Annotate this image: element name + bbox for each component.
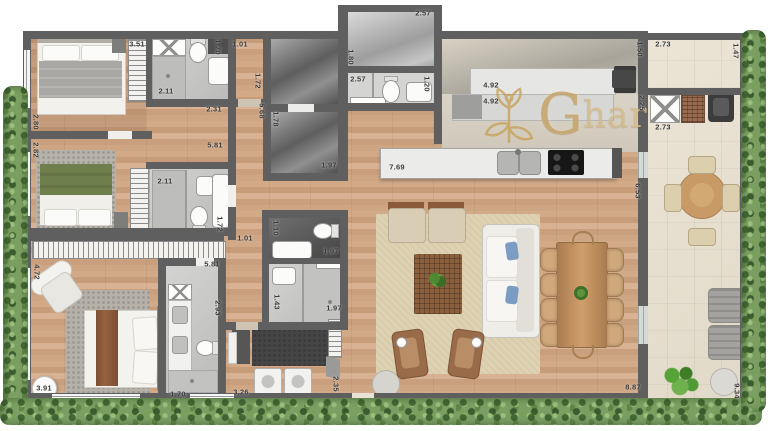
bedroom1-door-gap <box>108 131 132 139</box>
bbq-sink-counter <box>650 95 680 123</box>
bath2-door-gap <box>228 185 236 207</box>
corridor-door-gap <box>238 99 261 107</box>
sofa-back <box>516 228 534 332</box>
terrace-table <box>678 171 726 219</box>
wall-unit257-top <box>344 5 442 12</box>
terrace-slider-1 <box>638 152 648 178</box>
bathroom1-sink-counter <box>152 39 186 56</box>
bathroom4-drain <box>328 300 332 304</box>
bathroom3-toilet <box>313 223 333 239</box>
dining-chair-l3 <box>540 298 558 322</box>
dining-centerpiece <box>574 286 588 300</box>
island-cooktop <box>548 150 584 175</box>
wall-baths34-left <box>262 210 269 330</box>
wall-corridor-right <box>263 31 271 181</box>
bedroom2-green-blanket <box>40 164 112 195</box>
ironing-board <box>326 356 340 379</box>
unit257-basin <box>406 82 432 102</box>
hall-bench <box>612 70 636 88</box>
bedroom1-nightstand <box>112 38 126 53</box>
bathroom1-shaft <box>208 39 228 54</box>
wall-terrace-divider <box>640 88 740 95</box>
terrace-chair-right <box>722 184 740 212</box>
sofa-pillow-blue-1 <box>505 241 519 260</box>
gray-room-lower-floor <box>271 112 340 173</box>
master-wardrobe <box>32 241 226 259</box>
wall-bath1-left <box>146 36 152 102</box>
terrace-plant <box>660 362 700 400</box>
wall-top-right-section <box>442 31 648 39</box>
wall-masterbath-left <box>158 258 166 393</box>
floor-lamp-2 <box>471 337 482 348</box>
dining-chair-r2 <box>606 273 624 297</box>
wall-unit257-left <box>338 5 348 181</box>
wall-bath1-right <box>228 31 236 107</box>
bathroom3-toilet-tank <box>331 224 339 238</box>
laundry-counter <box>252 328 330 366</box>
hedge-right <box>741 30 766 412</box>
wall-masterbath-top <box>158 258 226 266</box>
bathroom1-shower-drain <box>166 74 170 78</box>
grayroom-door-gap <box>288 104 314 112</box>
master-bed-runner <box>96 310 118 386</box>
hedge-bottom <box>0 398 762 425</box>
lounge-chair-2 <box>708 325 744 360</box>
wall-bed2-bottom <box>23 228 236 236</box>
bbq-grill <box>681 95 705 123</box>
bathroom4-shower <box>302 264 342 322</box>
wall-bath2-top <box>146 162 236 169</box>
dining-chair-r4 <box>606 323 624 347</box>
dining-chair-l2 <box>540 273 558 297</box>
bathroom1-toilet <box>189 42 207 63</box>
hedge-left <box>3 86 28 416</box>
wall-top-left <box>23 31 348 39</box>
master-bath-sink-counter <box>168 284 192 300</box>
master-pillow-top <box>132 316 159 351</box>
washing-machine-1 <box>254 368 282 395</box>
bedroom2-pillow-left <box>44 209 77 226</box>
floor-lamp-1 <box>396 337 407 348</box>
bedroom1-wardrobe <box>128 39 148 102</box>
bedroom2-wardrobe <box>130 168 149 230</box>
laundry-door-leaf <box>228 332 237 364</box>
terrace-slider-2 <box>638 306 648 344</box>
dining-chair-r1 <box>606 248 624 272</box>
dining-head-chair-top <box>572 231 594 245</box>
bathroom1-shower <box>152 56 186 100</box>
armchair-1 <box>388 208 426 243</box>
lounge-chair-1 <box>708 288 744 323</box>
wall-baths34-bottom <box>262 322 348 330</box>
wall-unit257-stub <box>434 108 442 144</box>
floorplan-screenshot: Ghar 3.511.701.012.112.312.801.725.681.7… <box>0 0 768 431</box>
terrace-chair-left <box>664 184 682 212</box>
unit257-toilet <box>382 80 400 103</box>
bbq-appliance-inner <box>713 98 729 116</box>
unit257-room-floor <box>344 12 442 72</box>
dining-chair-l1 <box>540 248 558 272</box>
armchair-2 <box>428 208 466 243</box>
bathroom2-toilet <box>190 206 208 227</box>
sofa-pillow-blue-2 <box>505 285 519 304</box>
wall-unit257-bottom <box>344 103 442 111</box>
terrace-chair-top <box>688 156 716 174</box>
washing-machine-2 <box>284 368 312 395</box>
bathroom3-bathtub <box>272 241 312 259</box>
wall-bed1-bed2 <box>23 131 152 139</box>
master-pillow-bottom <box>132 350 159 385</box>
coffee-table-plant <box>428 272 446 288</box>
bathroom4-basin <box>272 267 296 285</box>
kitchen-cabinet-box <box>452 95 482 119</box>
dining-chair-r3 <box>606 298 624 322</box>
wall-baths34-divider <box>269 258 340 264</box>
bedroom2-nightstand <box>114 212 128 228</box>
master-bath-drain <box>190 379 194 383</box>
dining-chair-l4 <box>540 323 558 347</box>
bathroom1-basin <box>208 57 230 85</box>
wall-unit257-mid <box>348 66 434 73</box>
wall-grayrooms-bottom <box>263 173 348 181</box>
wall-master-wardrobe <box>31 236 224 241</box>
masterbath-door-gap <box>196 258 214 266</box>
wall-unit257-right <box>434 5 442 110</box>
kitchen-counter-back <box>470 68 616 95</box>
bedroom1-pillow-left <box>42 45 80 61</box>
wall-terrace-top <box>638 33 748 40</box>
terrace-chair-bottom <box>688 228 716 246</box>
bathroom2-shower <box>152 170 186 230</box>
laundry-door-gap <box>236 322 258 330</box>
bedroom1-duvet <box>39 61 122 98</box>
wall-baths34-top <box>262 210 348 218</box>
island-end-column <box>612 148 622 178</box>
master-bath-sink-1 <box>172 306 188 324</box>
bathroom2-glass <box>185 170 187 228</box>
bedroom2-pillow-right <box>78 209 111 226</box>
gray-room-upper-floor <box>271 39 340 105</box>
island-faucet <box>515 149 521 155</box>
island-sink-2 <box>519 151 541 175</box>
wall-baths34-right <box>340 210 348 330</box>
master-bath-sink-2 <box>172 336 188 354</box>
terrace-side-table <box>710 368 738 396</box>
wall-corridor-bed2 <box>228 107 236 240</box>
